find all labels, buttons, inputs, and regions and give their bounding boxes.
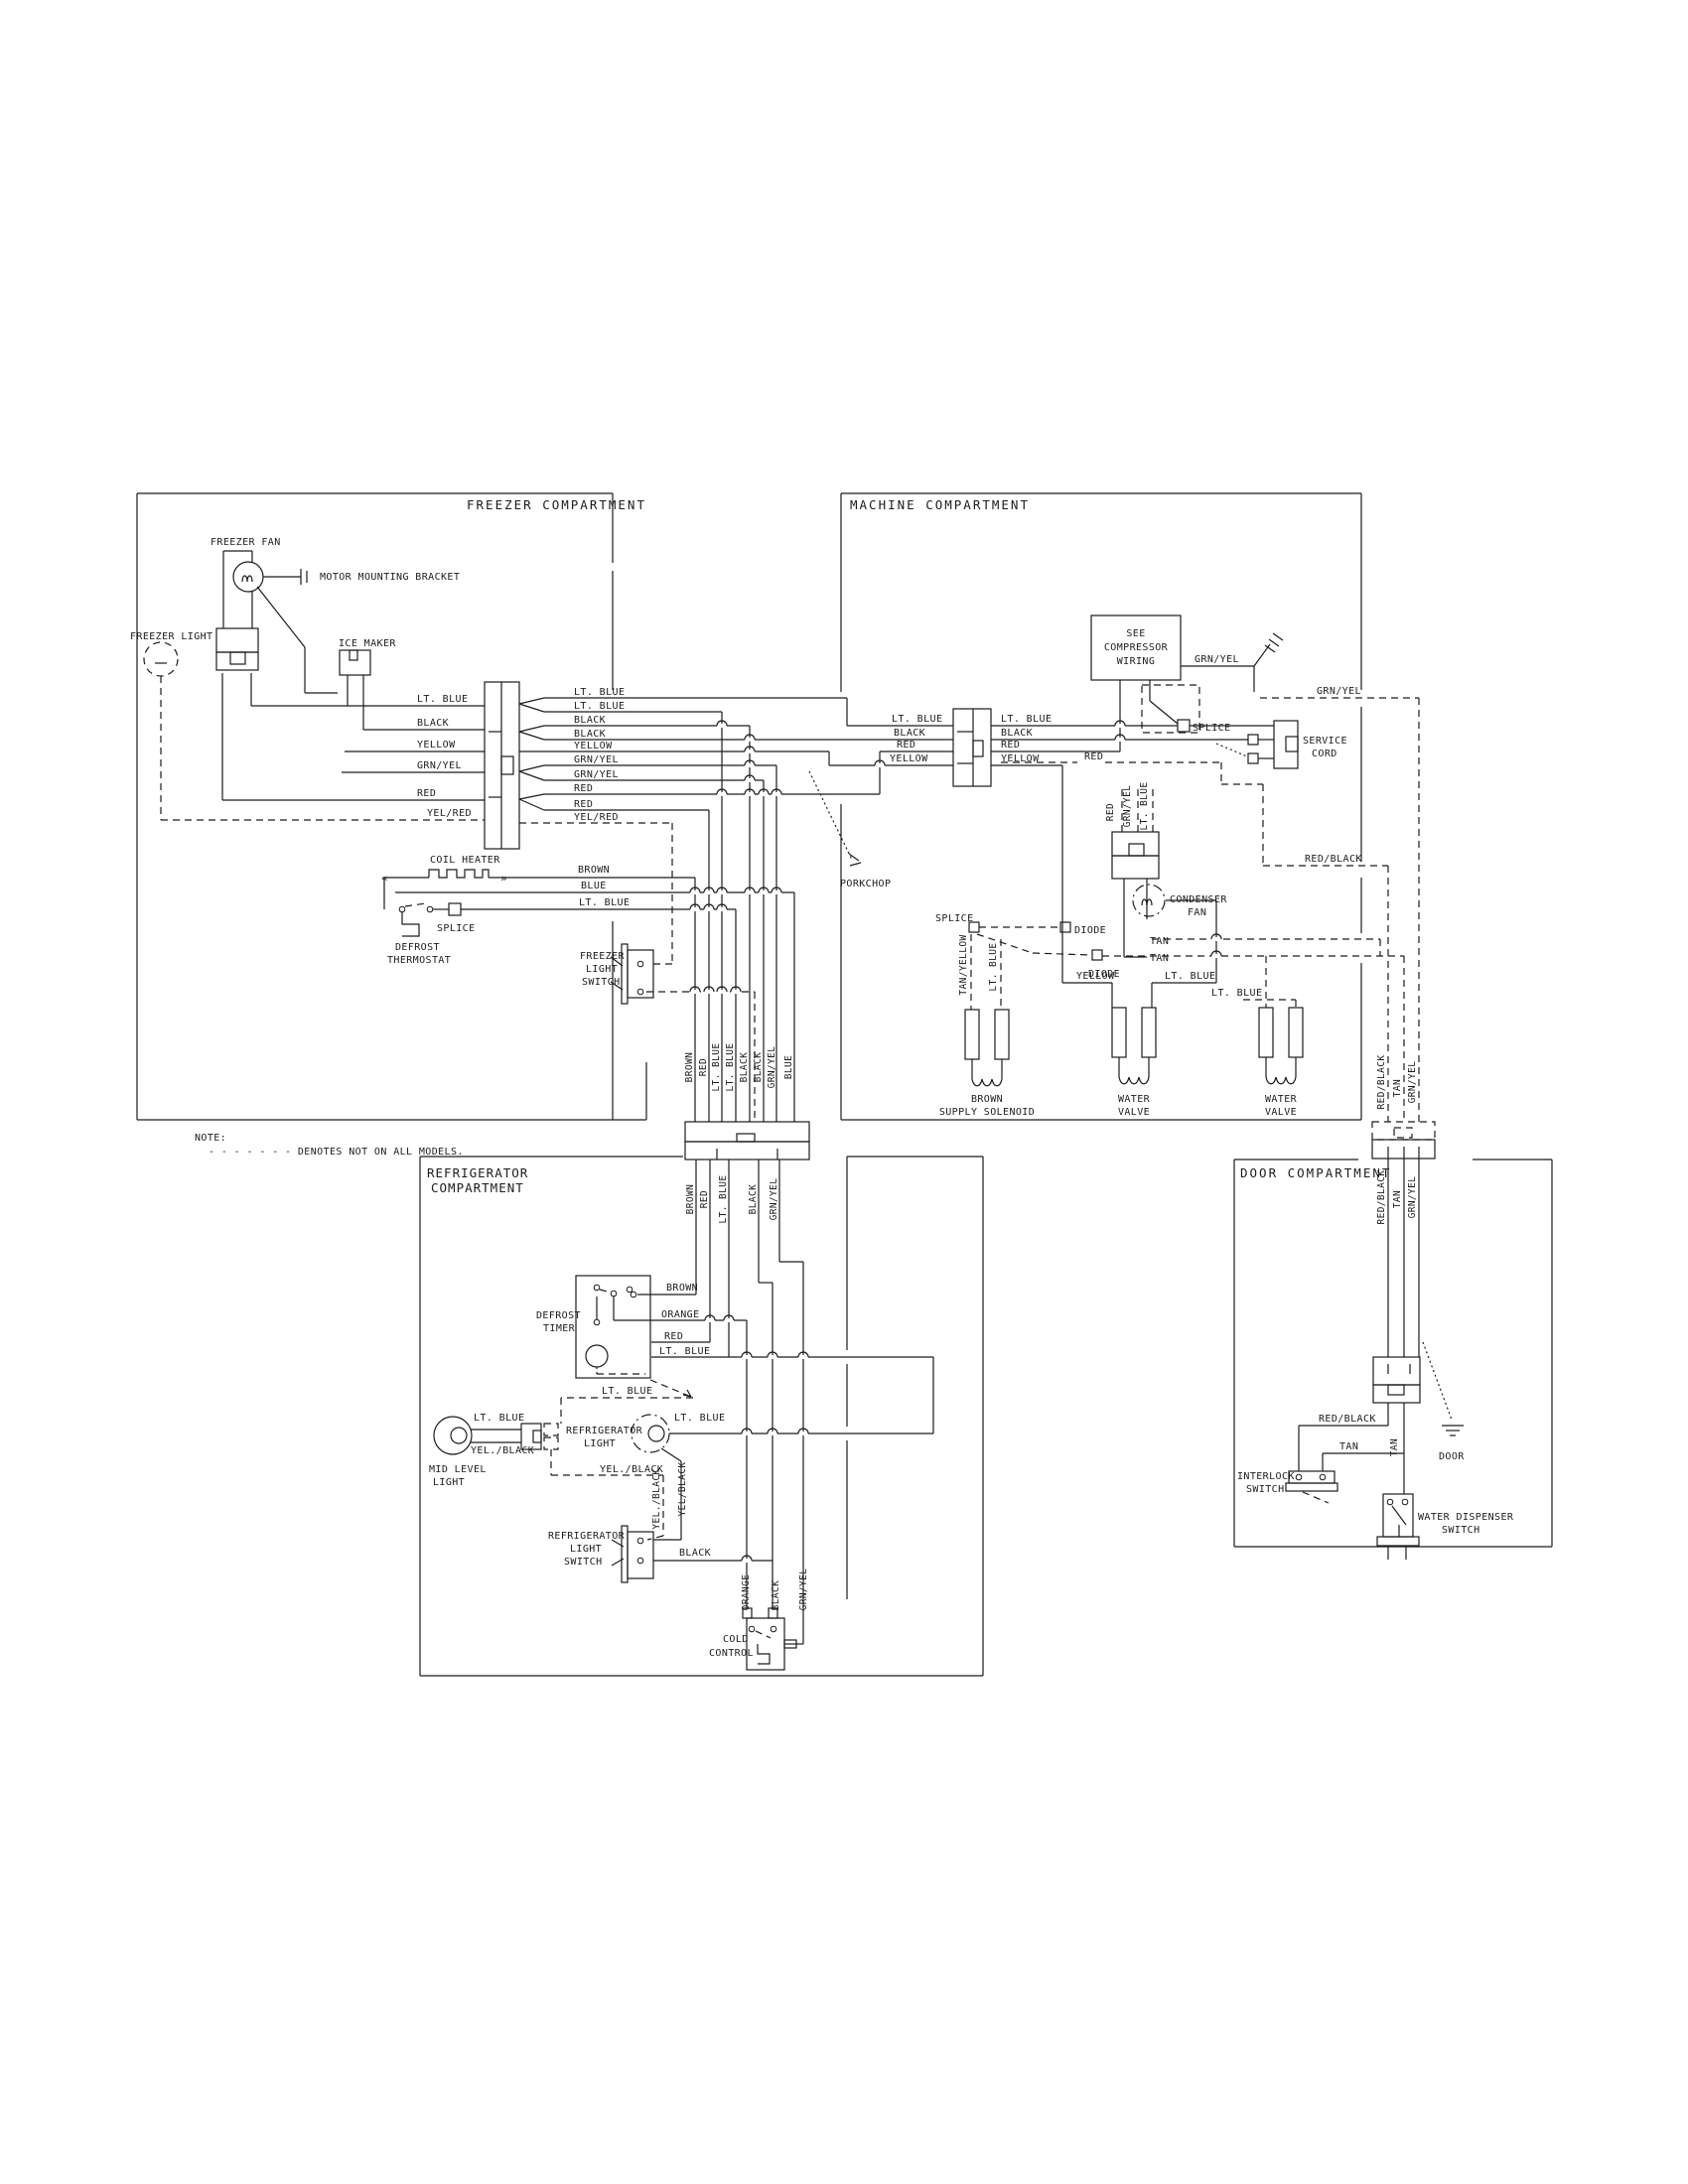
label-grn-yel: GRN/YEL (1407, 1061, 1418, 1104)
label-tan: TAN (1389, 1438, 1400, 1456)
label-lt-blue: LT. BLUE (574, 701, 625, 712)
condenser-fan (1133, 885, 1165, 916)
splice (1178, 720, 1190, 732)
label-yel-black: YEL./BLACK (651, 1468, 662, 1529)
splice (449, 903, 461, 915)
terminal (627, 1287, 633, 1293)
label-yellow: YELLOW (890, 753, 928, 764)
fan-coil-glyph (242, 576, 252, 582)
component-box (1112, 856, 1159, 879)
component-box (533, 1431, 541, 1442)
terminal (637, 989, 643, 995)
solenoid-coil (972, 1079, 1002, 1086)
label-lt-blue: LT. BLUE (892, 714, 942, 725)
label-grn-yel: GRN/YEL (574, 754, 619, 765)
terminal (771, 1626, 776, 1632)
wire (519, 726, 544, 732)
label-red-black: RED/BLACK (1319, 1414, 1376, 1425)
label-timer: TIMER (543, 1323, 576, 1334)
label-defrost: DEFROST (536, 1310, 581, 1321)
label-water-dispenser: WATER DISPENSER (1418, 1512, 1514, 1523)
component-box (216, 628, 258, 652)
label-note: NOTE: (195, 1133, 226, 1144)
terminal (427, 906, 433, 912)
label-grn-yel: GRN/YEL (1195, 654, 1239, 665)
wire (661, 1448, 681, 1461)
component-box (544, 1424, 558, 1435)
component-box (216, 652, 258, 670)
label-grn-yel: GRN/YEL (1317, 686, 1361, 697)
component-box (501, 756, 513, 774)
wire (519, 799, 544, 810)
label-coil-heater: COIL HEATER (430, 855, 500, 866)
label-tan: TAN (1150, 936, 1169, 947)
component-box (1259, 1008, 1273, 1057)
label-switch: SWITCH (1246, 1484, 1285, 1495)
wiring-diagram-page: FREEZER COMPARTMENTMACHINE COMPARTMENTDO… (0, 0, 1688, 2184)
label-blue: BLUE (581, 881, 607, 891)
label-fan: FAN (1188, 907, 1206, 918)
label-orange: ORANGE (661, 1309, 700, 1320)
component-box (1142, 1008, 1156, 1057)
label-lt-blue: LT. BLUE (574, 687, 625, 698)
freezer-light (144, 642, 178, 676)
label-brown: BROWN (971, 1094, 1003, 1105)
label-brown: BROWN (578, 865, 610, 876)
label-yel-black: YEL./BLACK (471, 1445, 534, 1456)
terminal (399, 906, 405, 912)
machine-connector (953, 709, 991, 786)
label-lt-blue: LT. BLUE (711, 1043, 722, 1092)
wire (1033, 953, 1090, 955)
label-red: RED (1001, 740, 1020, 751)
label-refrigerator: REFRIGERATOR (566, 1426, 643, 1436)
label-red: RED (698, 1058, 709, 1076)
terminal (1402, 1499, 1408, 1505)
label-denotes-not-on-all-models: - - - - - - - DENOTES NOT ON ALL MODELS. (209, 1147, 464, 1158)
label-diode: DIODE (1074, 925, 1106, 936)
label-red: RED (699, 1190, 710, 1208)
terminal (611, 1291, 617, 1297)
wire (977, 934, 1033, 953)
label-black: BLACK (1001, 728, 1033, 739)
defrost-timer-motor (586, 1345, 608, 1367)
terminal (637, 1558, 643, 1564)
label-tan: TAN (1150, 953, 1169, 964)
label-lt-blue: LT. BLUE (988, 943, 999, 992)
wire (1216, 744, 1247, 756)
label-grn-yel: GRN/YEL (767, 1046, 777, 1089)
cold-control-element (758, 1644, 770, 1664)
label-yellow: YELLOW (1001, 753, 1040, 764)
label-service: SERVICE (1303, 736, 1347, 747)
component-box (1388, 1385, 1404, 1395)
component-box (1129, 844, 1144, 856)
label-red-black: RED/BLACK (1376, 1169, 1387, 1224)
ice-maker (340, 650, 370, 675)
label-compressor: COMPRESSOR (1104, 642, 1169, 653)
label-machine-compartment: MACHINE COMPARTMENT (850, 497, 1030, 512)
label-red-black: RED/BLACK (1305, 854, 1362, 865)
label-grn-yel: GRN/YEL (574, 769, 619, 780)
component-box (737, 1134, 755, 1142)
label-splice: SPLICE (935, 913, 974, 924)
label-grn-yel: GRN/YEL (1407, 1176, 1418, 1219)
wire (519, 765, 544, 771)
label-water: WATER (1265, 1094, 1298, 1105)
label-refrigerator: REFRIGERATOR (427, 1165, 528, 1180)
component-box (544, 1437, 558, 1449)
label-door-compartment: DOOR COMPARTMENT (1240, 1165, 1391, 1180)
label-door: DOOR (1439, 1451, 1465, 1462)
label-red: RED (664, 1331, 683, 1342)
label-black: BLACK (417, 718, 449, 729)
label-blue: BLUE (783, 1055, 794, 1079)
label-red: RED (574, 783, 593, 794)
label-porkchop: PORKCHOP (840, 879, 891, 889)
label-see: SEE (1126, 628, 1145, 639)
label-black: BLACK (771, 1580, 781, 1611)
component-box (1286, 1483, 1337, 1491)
label-brown: BROWN (666, 1283, 698, 1294)
valve-coil (1119, 1077, 1149, 1084)
wire (519, 794, 544, 799)
defrost-thermostat-element (402, 912, 419, 936)
terminal (1320, 1474, 1326, 1480)
label-switch: SWITCH (564, 1557, 603, 1568)
label-black: BLACK (739, 1052, 750, 1083)
label-valve: VALVE (1118, 1107, 1150, 1118)
wiring-diagram-svg: FREEZER COMPARTMENTMACHINE COMPARTMENTDO… (0, 0, 1688, 2184)
label-red: RED (897, 740, 915, 751)
label-black: BLACK (753, 1052, 764, 1083)
component-box (1248, 735, 1258, 745)
label-: « (381, 872, 388, 885)
label-black: BLACK (894, 728, 925, 739)
component-box (230, 652, 245, 664)
label-yel-black: YEL/BLACK (677, 1461, 688, 1516)
label-condenser: CONDENSER (1170, 894, 1227, 905)
component-box (350, 650, 357, 660)
wire (519, 771, 544, 780)
interface-connector (685, 1122, 809, 1142)
label-red: RED (1084, 751, 1103, 762)
label-lt-blue: LT. BLUE (659, 1346, 710, 1357)
label-light: LIGHT (433, 1477, 465, 1488)
wire (1150, 701, 1178, 724)
terminal (637, 961, 643, 967)
label-red: RED (574, 799, 593, 810)
wire (1273, 633, 1283, 640)
label-black: BLACK (748, 1184, 759, 1215)
label-control: CONTROL (709, 1648, 754, 1659)
diode (1092, 950, 1102, 960)
terminal (631, 1292, 636, 1297)
label-: » (500, 872, 507, 885)
label-light: LIGHT (586, 964, 618, 975)
label-freezer-light: FREEZER LIGHT (130, 631, 212, 642)
label-yel-red: YEL/RED (574, 812, 619, 823)
component-box (1394, 1128, 1412, 1138)
label-brown: BROWN (685, 1184, 696, 1215)
label-lt-blue: LT. BLUE (718, 1175, 729, 1224)
label-supply-solenoid: SUPPLY SOLENOID (939, 1107, 1035, 1118)
label-lt-blue: LT. BLUE (474, 1413, 524, 1424)
porkchop-symbol (849, 854, 861, 866)
terminal (594, 1319, 600, 1325)
wire (756, 1631, 771, 1638)
component-box (1248, 753, 1258, 763)
label-light: LIGHT (584, 1438, 616, 1449)
label-compartment: COMPARTMENT (431, 1180, 524, 1195)
label-red-black: RED/BLACK (1376, 1054, 1387, 1109)
door-mid-connector (1373, 1357, 1420, 1385)
label-freezer-fan: FREEZER FAN (211, 537, 281, 548)
door-connector (1372, 1122, 1435, 1140)
label-red: RED (417, 788, 436, 799)
label-wiring: WIRING (1117, 656, 1156, 667)
label-brown: BROWN (684, 1052, 695, 1083)
label-ice-maker: ICE MAKER (339, 638, 396, 649)
component-box (965, 1010, 979, 1059)
label-tan: TAN (1392, 1079, 1403, 1097)
component-circle (451, 1428, 467, 1443)
label-thermostat: THERMOSTAT (387, 955, 451, 966)
label-grn-yel: GRN/YEL (417, 760, 462, 771)
label-freezer: FREEZER (580, 951, 626, 962)
label-yel-red: YEL/RED (427, 808, 472, 819)
component-box (995, 1010, 1009, 1059)
wire (1423, 1342, 1452, 1420)
label-defrost: DEFROST (395, 942, 440, 953)
wire (1269, 639, 1279, 646)
terminal (637, 1538, 643, 1544)
label-grn-yel: GRN/YEL (769, 1178, 779, 1221)
label-freezer-compartment: FREEZER COMPARTMENT (467, 497, 646, 512)
wire (519, 698, 544, 704)
label-lt-blue: LT. BLUE (579, 897, 630, 908)
label-yellow: YELLOW (417, 740, 456, 751)
label-black: BLACK (574, 729, 606, 740)
mid-level-light (434, 1417, 472, 1454)
wire (809, 771, 852, 860)
label-mid-level: MID LEVEL (429, 1464, 487, 1475)
terminal (594, 1285, 600, 1291)
terminal (749, 1626, 755, 1632)
label-water: WATER (1118, 1094, 1151, 1105)
label-yellow: YELLOW (1076, 971, 1115, 982)
label-tan-yellow: TAN/YELLOW (958, 934, 969, 995)
label-grn-yel: GRN/YEL (798, 1569, 809, 1611)
label-lt-blue: LT. BLUE (725, 1043, 736, 1092)
label-refrigerator: REFRIGERATOR (548, 1531, 626, 1542)
label-grn-yel: GRN/YEL (1122, 785, 1133, 828)
label-yellow: YELLOW (574, 741, 613, 751)
label-cord: CORD (1312, 749, 1337, 759)
wire (257, 587, 305, 647)
component-circle (648, 1426, 664, 1441)
label-cold: COLD (723, 1634, 749, 1645)
label-splice: SPLICE (437, 923, 476, 934)
label-motor-mounting-bracket: MOTOR MOUNTING BRACKET (320, 572, 460, 583)
label-lt-blue: LT. BLUE (1165, 971, 1215, 982)
wire (519, 732, 544, 740)
component-box (1286, 737, 1298, 751)
component-box (973, 741, 983, 756)
label-lt-blue: LT. BLUE (602, 1386, 652, 1397)
label-black: BLACK (574, 715, 606, 726)
label-lt-blue: LT. BLUE (1001, 714, 1052, 725)
label-switch: SWITCH (582, 977, 621, 988)
label-lt-blue: LT. BLUE (1139, 782, 1150, 831)
label-splice: SPLICE (1193, 723, 1231, 734)
component-box (1289, 1008, 1303, 1057)
component-box (1112, 1008, 1126, 1057)
terminal (1296, 1474, 1302, 1480)
label-tan: TAN (1339, 1441, 1358, 1452)
component-box (1373, 1385, 1420, 1403)
valve-coil (1266, 1077, 1296, 1084)
wire (600, 1290, 611, 1293)
label-switch: SWITCH (1442, 1525, 1480, 1536)
label-valve: VALVE (1265, 1107, 1297, 1118)
component-box (1377, 1537, 1419, 1546)
wire (1303, 1492, 1329, 1503)
label-interlock: INTERLOCK (1237, 1471, 1295, 1482)
component-box (685, 1142, 809, 1160)
wire (519, 704, 544, 712)
wire (1392, 1506, 1406, 1525)
label-light: LIGHT (570, 1544, 602, 1555)
coil-heater-element (429, 870, 489, 878)
wire (405, 903, 426, 906)
label-black: BLACK (679, 1548, 711, 1559)
wire (650, 1380, 691, 1397)
label-lt-blue: LT. BLUE (1211, 988, 1262, 999)
label-lt-blue: LT. BLUE (674, 1413, 725, 1424)
label-tan: TAN (1392, 1190, 1403, 1208)
label-red: RED (1105, 803, 1116, 821)
label-orange: ORANGE (741, 1574, 752, 1611)
terminal (1387, 1499, 1393, 1505)
label-lt-blue: LT. BLUE (417, 694, 468, 705)
